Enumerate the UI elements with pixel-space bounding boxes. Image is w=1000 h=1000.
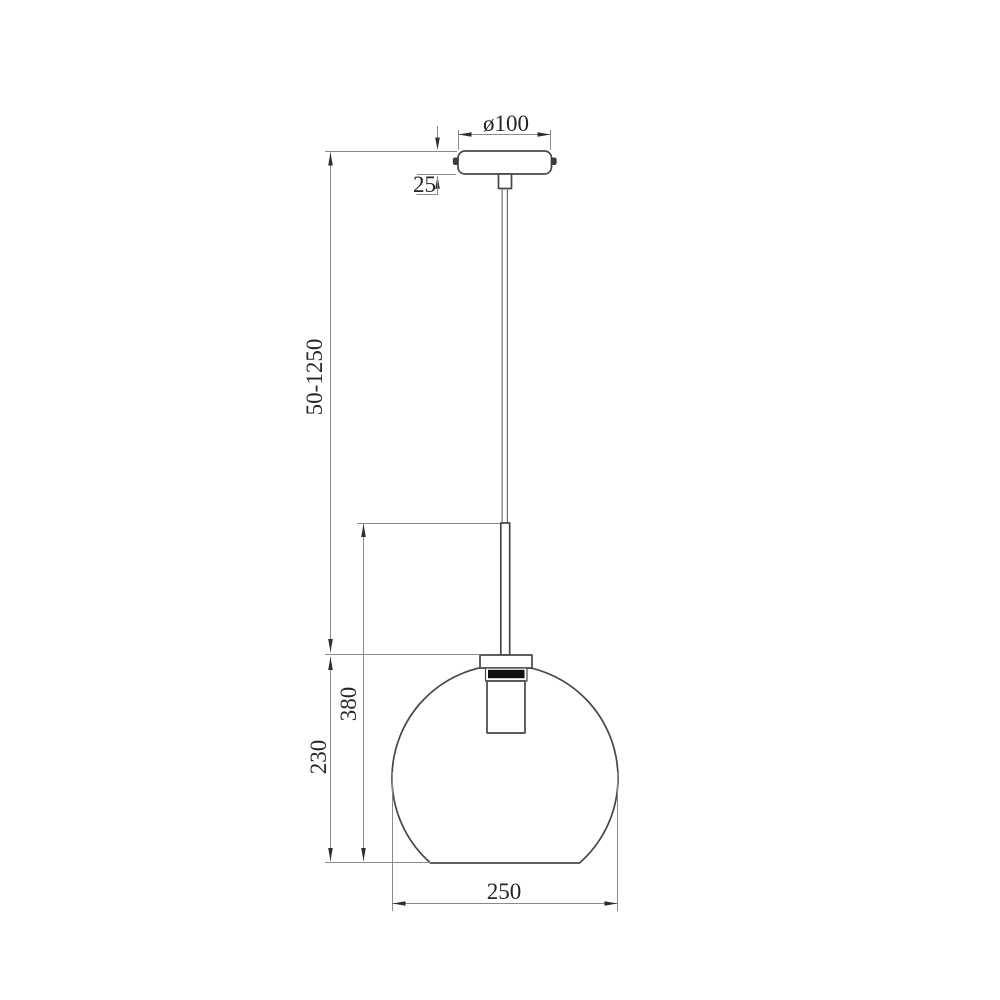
canopy-screw-left	[453, 158, 459, 166]
arrowhead-down	[328, 639, 333, 652]
cable-connector	[499, 174, 512, 189]
hanging-rod	[501, 523, 510, 655]
arrowhead-down	[328, 848, 333, 861]
arrowhead-left	[459, 132, 472, 137]
lamp-socket	[487, 681, 525, 733]
socket-collar	[480, 655, 532, 668]
drawing-sheet: ø100 25 50-1250 380	[0, 0, 1000, 1000]
arrowhead-right	[605, 901, 618, 906]
socket-band	[488, 670, 525, 678]
dim-shade-height: 230	[306, 657, 333, 861]
label-shade-height: 230	[306, 740, 331, 775]
arrowhead-right	[538, 132, 551, 137]
dim-canopy-diameter: ø100	[459, 111, 551, 150]
label-shade-diameter: 250	[487, 879, 522, 904]
arrowhead-down	[361, 848, 366, 861]
pendant-lamp	[392, 151, 618, 863]
label-fixture-height: 380	[336, 687, 361, 722]
arrowhead-down	[435, 138, 440, 151]
label-canopy-height: 25	[413, 172, 436, 197]
label-canopy-diameter: ø100	[483, 111, 529, 136]
arrowhead-up	[361, 524, 366, 537]
arrowhead-up	[328, 153, 333, 166]
ceiling-canopy	[458, 151, 552, 174]
arrowhead-left	[393, 901, 406, 906]
arrowhead-up	[328, 657, 333, 670]
label-suspension-range: 50-1250	[302, 339, 327, 416]
dim-canopy-height: 25	[325, 126, 457, 197]
dim-suspension-range: 50-1250	[302, 153, 333, 653]
pendant-lamp-technical-drawing: ø100 25 50-1250 380	[0, 0, 1000, 1000]
canopy-screw-right	[551, 158, 557, 166]
